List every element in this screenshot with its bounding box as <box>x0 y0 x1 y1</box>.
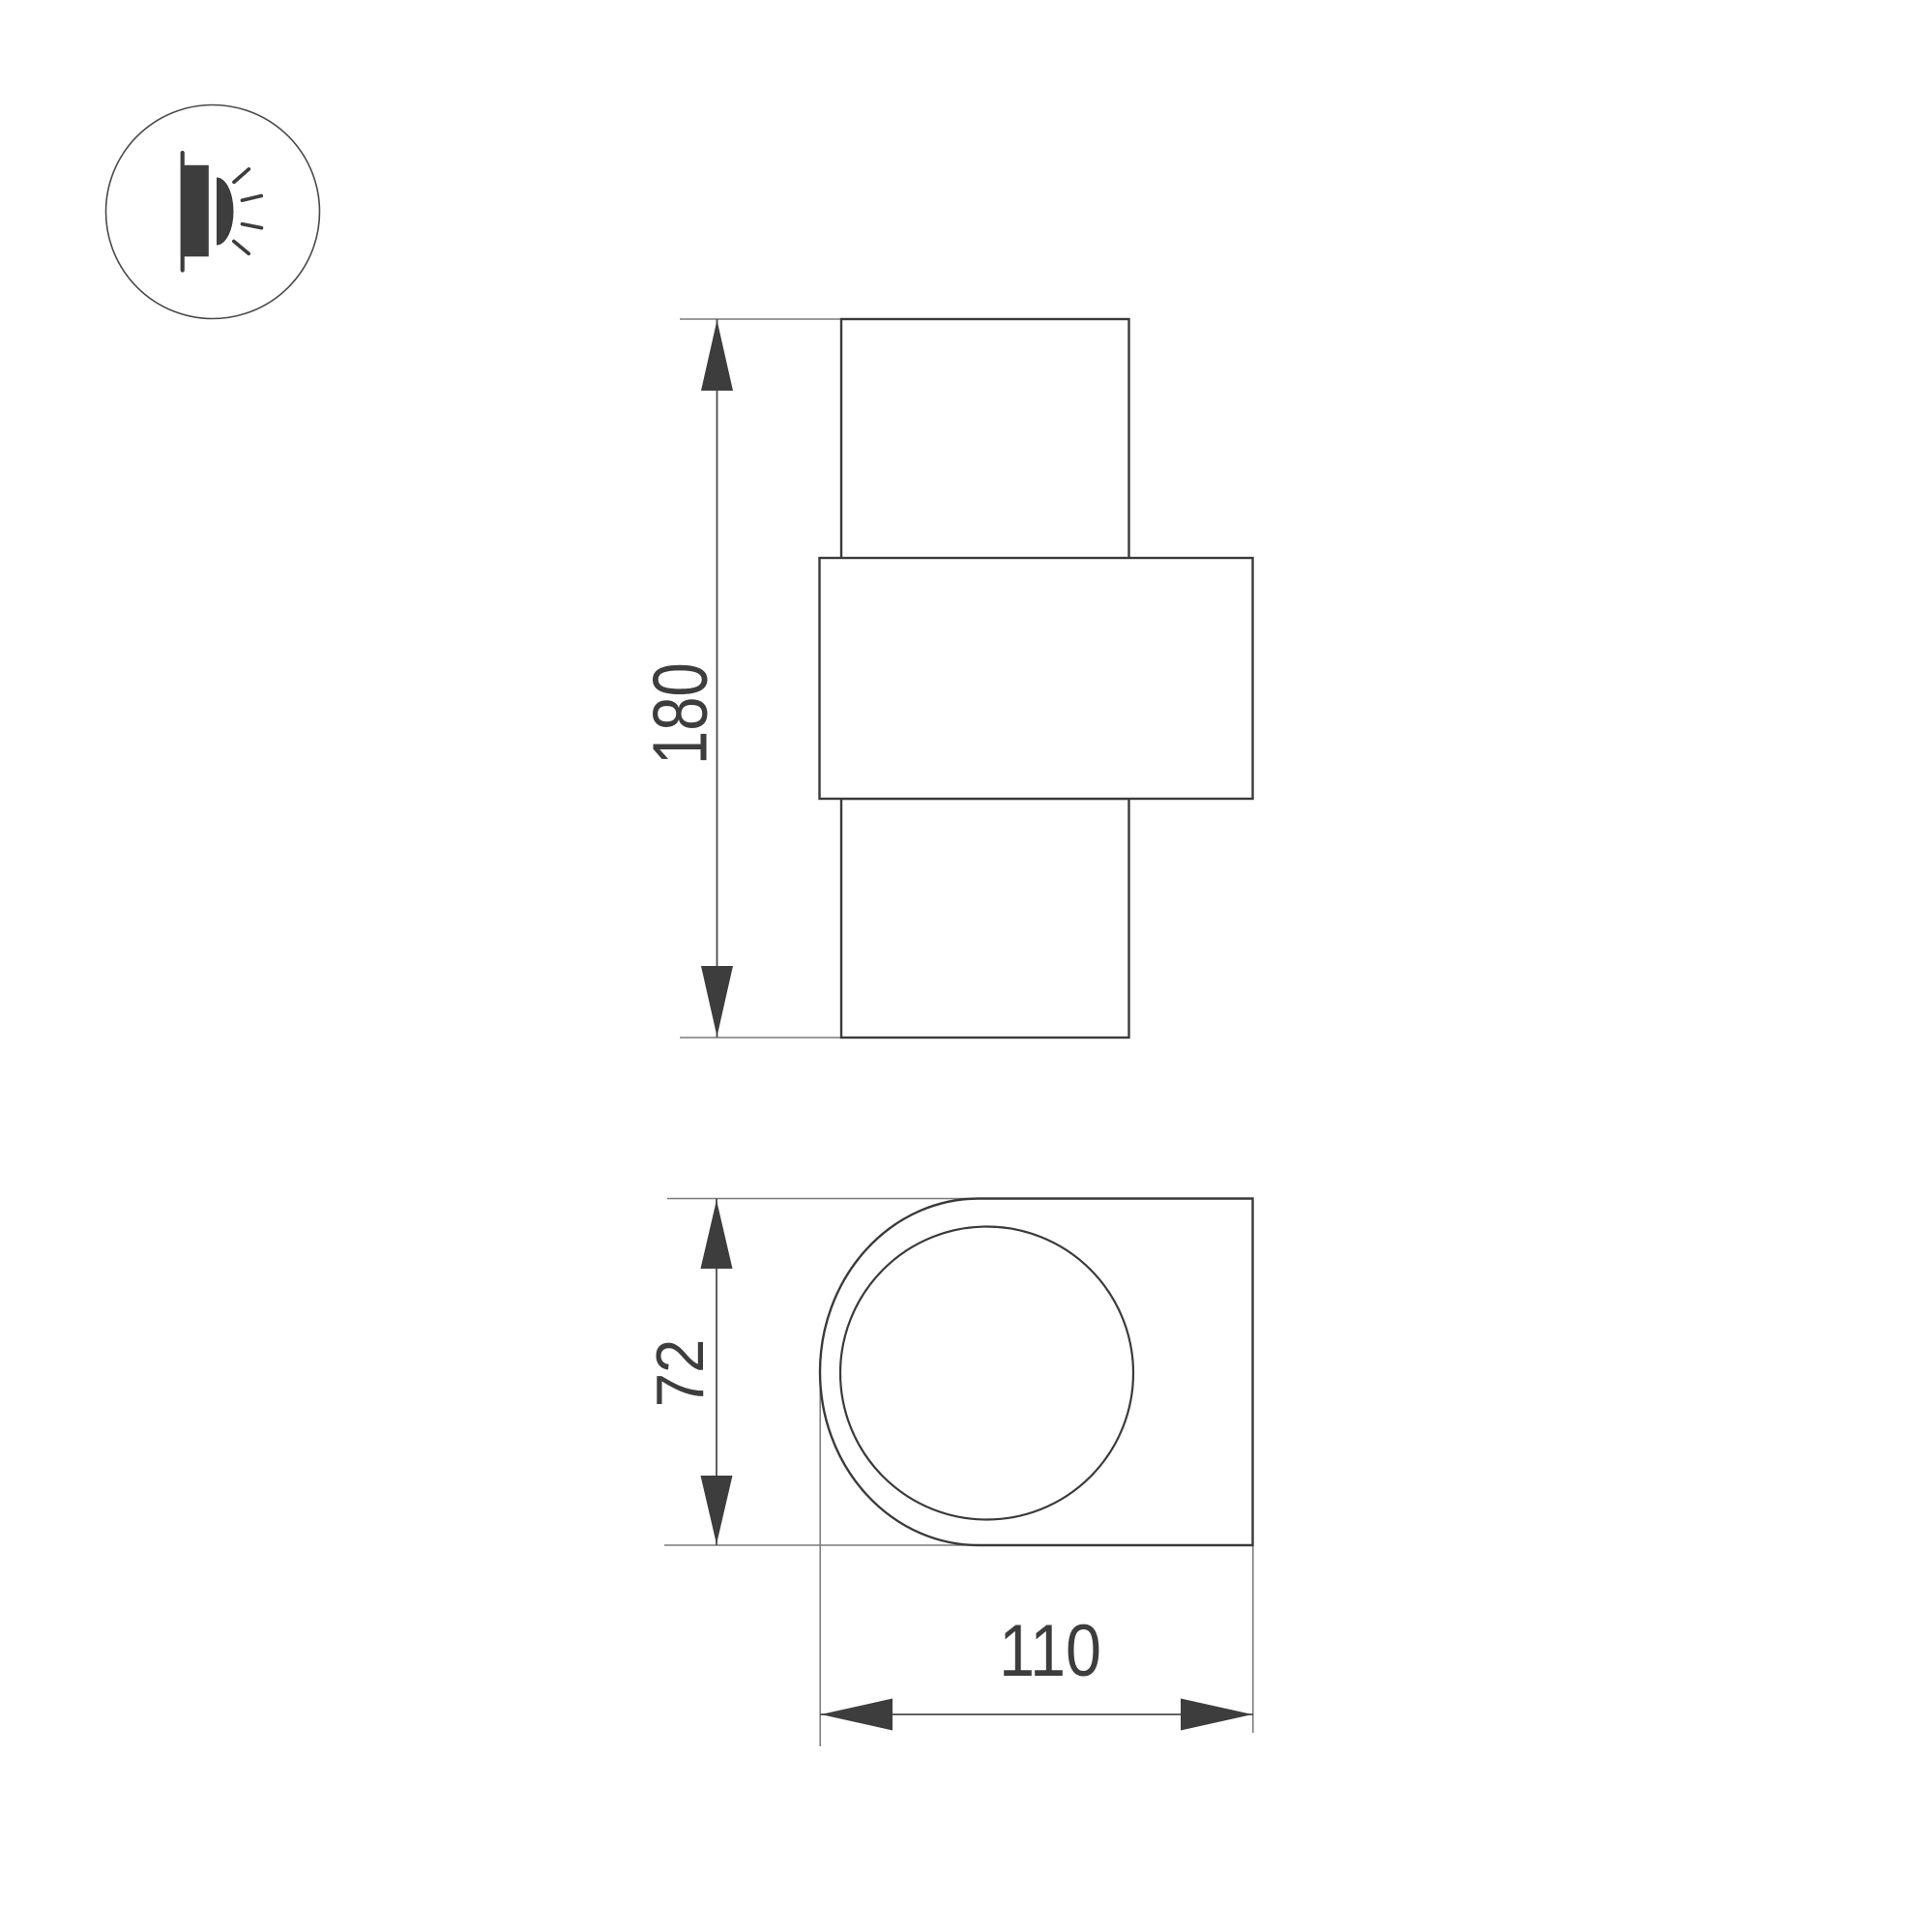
svg-text:110: 110 <box>999 1610 1101 1692</box>
svg-text:180: 180 <box>638 662 724 765</box>
svg-text:72: 72 <box>643 1339 718 1408</box>
